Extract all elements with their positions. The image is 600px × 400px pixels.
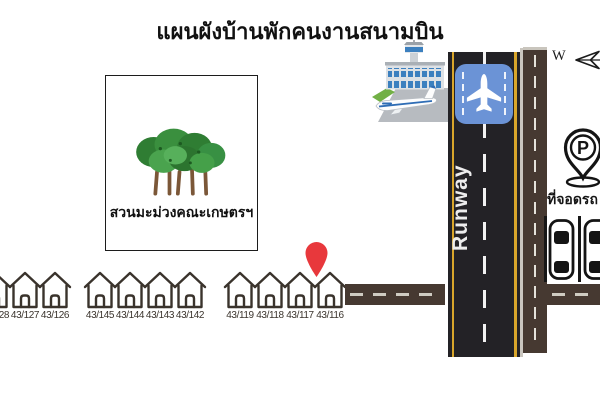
house-number: 43/119 xyxy=(225,310,255,321)
house-item: 43/144 xyxy=(115,270,145,321)
road-horizontal-left xyxy=(345,284,445,305)
sign-dash-line xyxy=(462,72,464,116)
parking-line xyxy=(578,216,581,282)
house-icon xyxy=(8,270,42,310)
house-icon xyxy=(83,270,117,310)
orchard-area: สวนมะม่วงคณะเกษตรฯ xyxy=(105,75,258,251)
parking-pin-icon: P xyxy=(562,126,600,188)
house-number: 43/143 xyxy=(145,310,175,321)
runway-sign xyxy=(455,64,513,124)
house-number: 43/144 xyxy=(115,310,145,321)
house-item: 43/145 xyxy=(85,270,115,321)
trees-icon xyxy=(132,122,232,202)
house-number: 43/116 xyxy=(315,310,345,321)
house-number: 43/118 xyxy=(255,310,285,321)
house-icon xyxy=(113,270,147,310)
compass-arrow-icon xyxy=(575,50,600,70)
house-number: 43/142 xyxy=(175,310,205,321)
location-pin-icon xyxy=(303,241,330,278)
house-group-2: 43/145 43/144 43/143 43/142 xyxy=(85,270,205,321)
house-item: 43/127 xyxy=(10,270,40,321)
house-item: 43/143 xyxy=(145,270,175,321)
house-number: 43/127 xyxy=(10,310,40,321)
house-item: 43/119 xyxy=(225,270,255,321)
runway: Runway xyxy=(448,52,520,357)
house-number: 43/145 xyxy=(85,310,115,321)
road-vertical xyxy=(523,47,547,353)
road-dash-line xyxy=(552,293,595,296)
airplane-icon xyxy=(465,72,503,116)
house-icon xyxy=(38,270,72,310)
car-icon xyxy=(583,218,600,281)
house-icon xyxy=(253,270,287,310)
house-item: 43/142 xyxy=(175,270,205,321)
orchard-label: สวนมะม่วงคณะเกษตรฯ xyxy=(106,202,257,224)
house-item: 43/118 xyxy=(255,270,285,321)
page-title: แผนผังบ้านพักคนงานสนามบิน xyxy=(0,14,600,49)
house-number: 43/126 xyxy=(40,310,70,321)
house-icon xyxy=(223,270,257,310)
house-item: 43/126 xyxy=(40,270,70,321)
road-horizontal-right xyxy=(547,284,600,305)
house-group-1: 43/128 43/127 43/126 xyxy=(0,270,70,321)
house-number: 43/117 xyxy=(285,310,315,321)
runway-edge-line xyxy=(514,52,517,357)
map-canvas: แผนผังบ้านพักคนงานสนามบิน สวน xyxy=(0,0,600,400)
road-dash-line xyxy=(534,55,537,349)
parking-pin-letter: P xyxy=(577,138,589,158)
sign-dash-line xyxy=(504,72,506,116)
parking-label: ที่จอดรถ xyxy=(547,189,598,211)
car-icon xyxy=(548,218,575,281)
house-number: 43/128 xyxy=(0,310,10,321)
road-dash-line xyxy=(350,293,440,296)
house-icon xyxy=(143,270,177,310)
parking-line xyxy=(544,216,547,282)
house-icon xyxy=(173,270,207,310)
runway-label: Runway xyxy=(449,150,475,265)
compass-west-label: W xyxy=(552,48,566,65)
airport-terminal-icon xyxy=(372,40,448,122)
